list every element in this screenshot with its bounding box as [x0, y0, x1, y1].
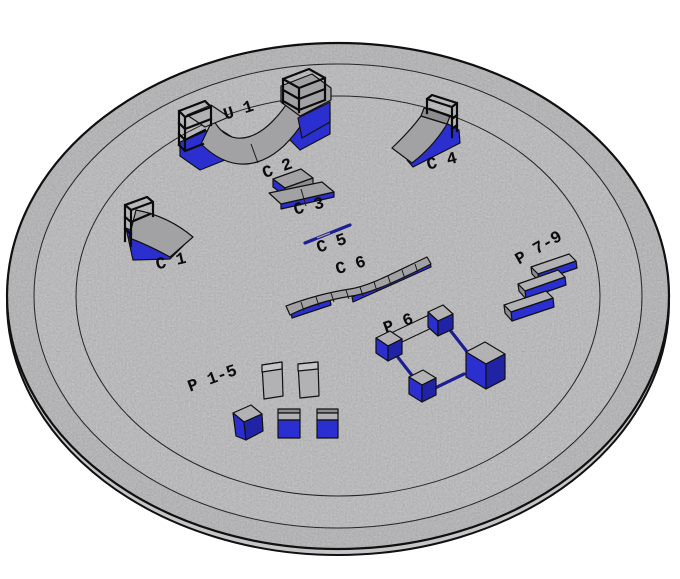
- p15-box-b-front: [278, 420, 300, 438]
- p15-panel-2-top: [298, 362, 318, 371]
- skatepark-3d-viewport[interactable]: U 1 C 1 C 4 C 2 C 3 C 5: [0, 0, 680, 579]
- p15-box-c-top: [317, 413, 338, 420]
- p15-box-b-top: [278, 413, 300, 420]
- p15-box-c-front: [317, 420, 338, 438]
- skatepark-scene: U 1 C 1 C 4 C 2 C 3 C 5: [0, 0, 680, 579]
